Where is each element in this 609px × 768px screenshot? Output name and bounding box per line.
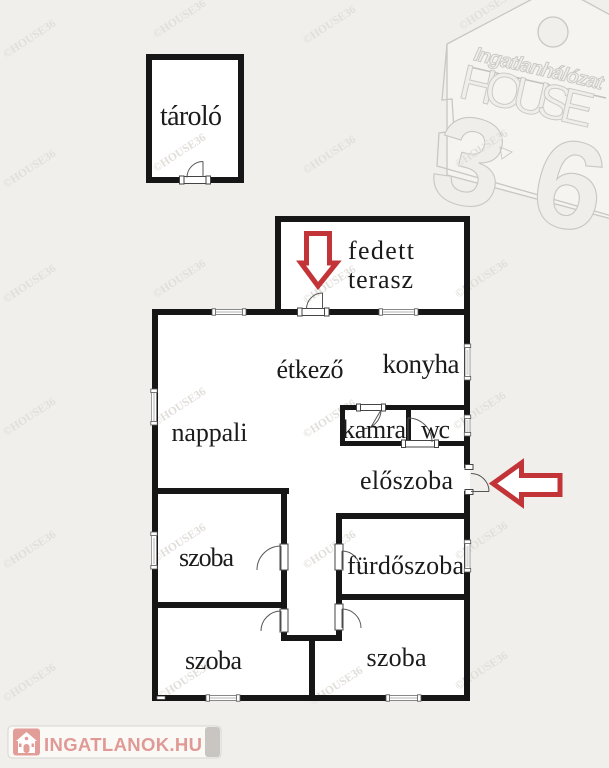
svg-text:szoba: szoba [185, 646, 242, 675]
svg-text:terasz: terasz [348, 265, 413, 294]
svg-text:wc: wc [421, 415, 450, 444]
svg-text:nappali: nappali [172, 418, 248, 447]
svg-text:konyha: konyha [383, 349, 460, 379]
svg-text:tároló: tároló [160, 101, 222, 132]
svg-text:előszoba: előszoba [360, 466, 453, 495]
svg-text:INGATLANOK.HU: INGATLANOK.HU [44, 734, 202, 755]
svg-text:fedett: fedett [348, 236, 415, 265]
svg-text:szoba: szoba [367, 643, 427, 672]
svg-text:szoba: szoba [179, 543, 234, 572]
svg-text:étkező: étkező [277, 355, 344, 384]
svg-text:kamra: kamra [342, 415, 406, 444]
svg-text:fürdőszoba: fürdőszoba [347, 551, 464, 580]
